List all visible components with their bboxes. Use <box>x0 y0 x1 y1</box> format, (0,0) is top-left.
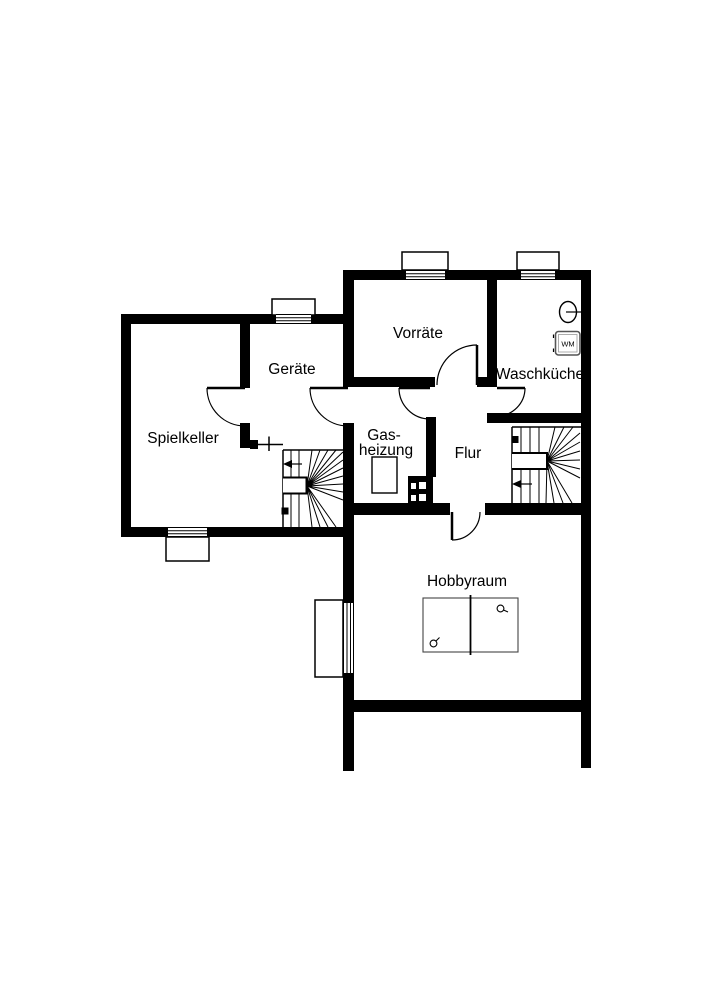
wall-spielkeller-divider-upper <box>240 324 250 388</box>
room-label-vorraete: Vorräte <box>393 325 443 342</box>
door-geraete <box>310 388 348 426</box>
door-hobbyraum <box>452 512 480 540</box>
stairs-right-arrow <box>512 480 532 488</box>
stairs-right-start-marker <box>512 436 519 443</box>
room-label-gasheizung-line2: heizung <box>359 442 413 459</box>
staircase-right <box>512 427 582 503</box>
wall-main-right <box>581 270 591 768</box>
window-vorraete <box>402 252 448 280</box>
door-vorraete-flur <box>437 345 477 385</box>
boiler <box>372 457 397 493</box>
room-label-waschkueche: Waschküche <box>496 366 584 383</box>
wall-wing-left <box>121 314 131 537</box>
floor-plan-page: WM Spielkeller Geräte Vorräte Waschküche… <box>0 0 706 1000</box>
watermark-text: McGrundriss <box>582 722 591 767</box>
wall-main-left-lower <box>343 423 354 771</box>
wall-waschkueche-south <box>487 413 581 423</box>
staircase-left <box>282 450 344 527</box>
wall-spielkeller-divider-lower <box>240 423 250 448</box>
window-geraete <box>272 299 315 324</box>
door-spielkeller <box>207 388 245 426</box>
window-hobbyraum <box>315 600 354 677</box>
walls <box>121 270 591 771</box>
wall-hobbyraum-bottom <box>343 700 591 712</box>
washing-machine-icon: WM <box>554 332 581 356</box>
room-label-hobbyraum: Hobbyraum <box>427 573 507 590</box>
floor-plan-drawing: WM Spielkeller Geräte Vorräte Waschküche… <box>0 0 706 1000</box>
room-label-geraete: Geräte <box>268 361 315 378</box>
wall-vorraete-south <box>354 377 435 387</box>
window-spielkeller <box>166 527 209 561</box>
threshold-geraete-stairs <box>258 437 283 452</box>
door-gasheizung <box>399 388 430 419</box>
room-label-spielkeller: Spielkeller <box>147 430 219 447</box>
wall-divider-end-cap <box>250 440 258 449</box>
room-label-flur: Flur <box>455 445 482 462</box>
wall-hobbyraum-top-left <box>354 503 450 515</box>
wall-gasheizung-east <box>426 417 436 477</box>
wall-wing-bottom <box>121 527 353 537</box>
stairs-left-start-marker <box>282 508 289 515</box>
door-waschkueche <box>497 388 525 416</box>
ping-pong-table <box>423 595 518 655</box>
chimney <box>408 476 433 506</box>
washing-machine-label: WM <box>561 340 574 349</box>
wall-wing-top <box>121 314 353 324</box>
wall-main-left-upper <box>343 270 354 387</box>
wall-hobbyraum-top-right <box>485 503 591 515</box>
sink-icon <box>560 302 582 323</box>
window-waschkueche <box>517 252 559 280</box>
